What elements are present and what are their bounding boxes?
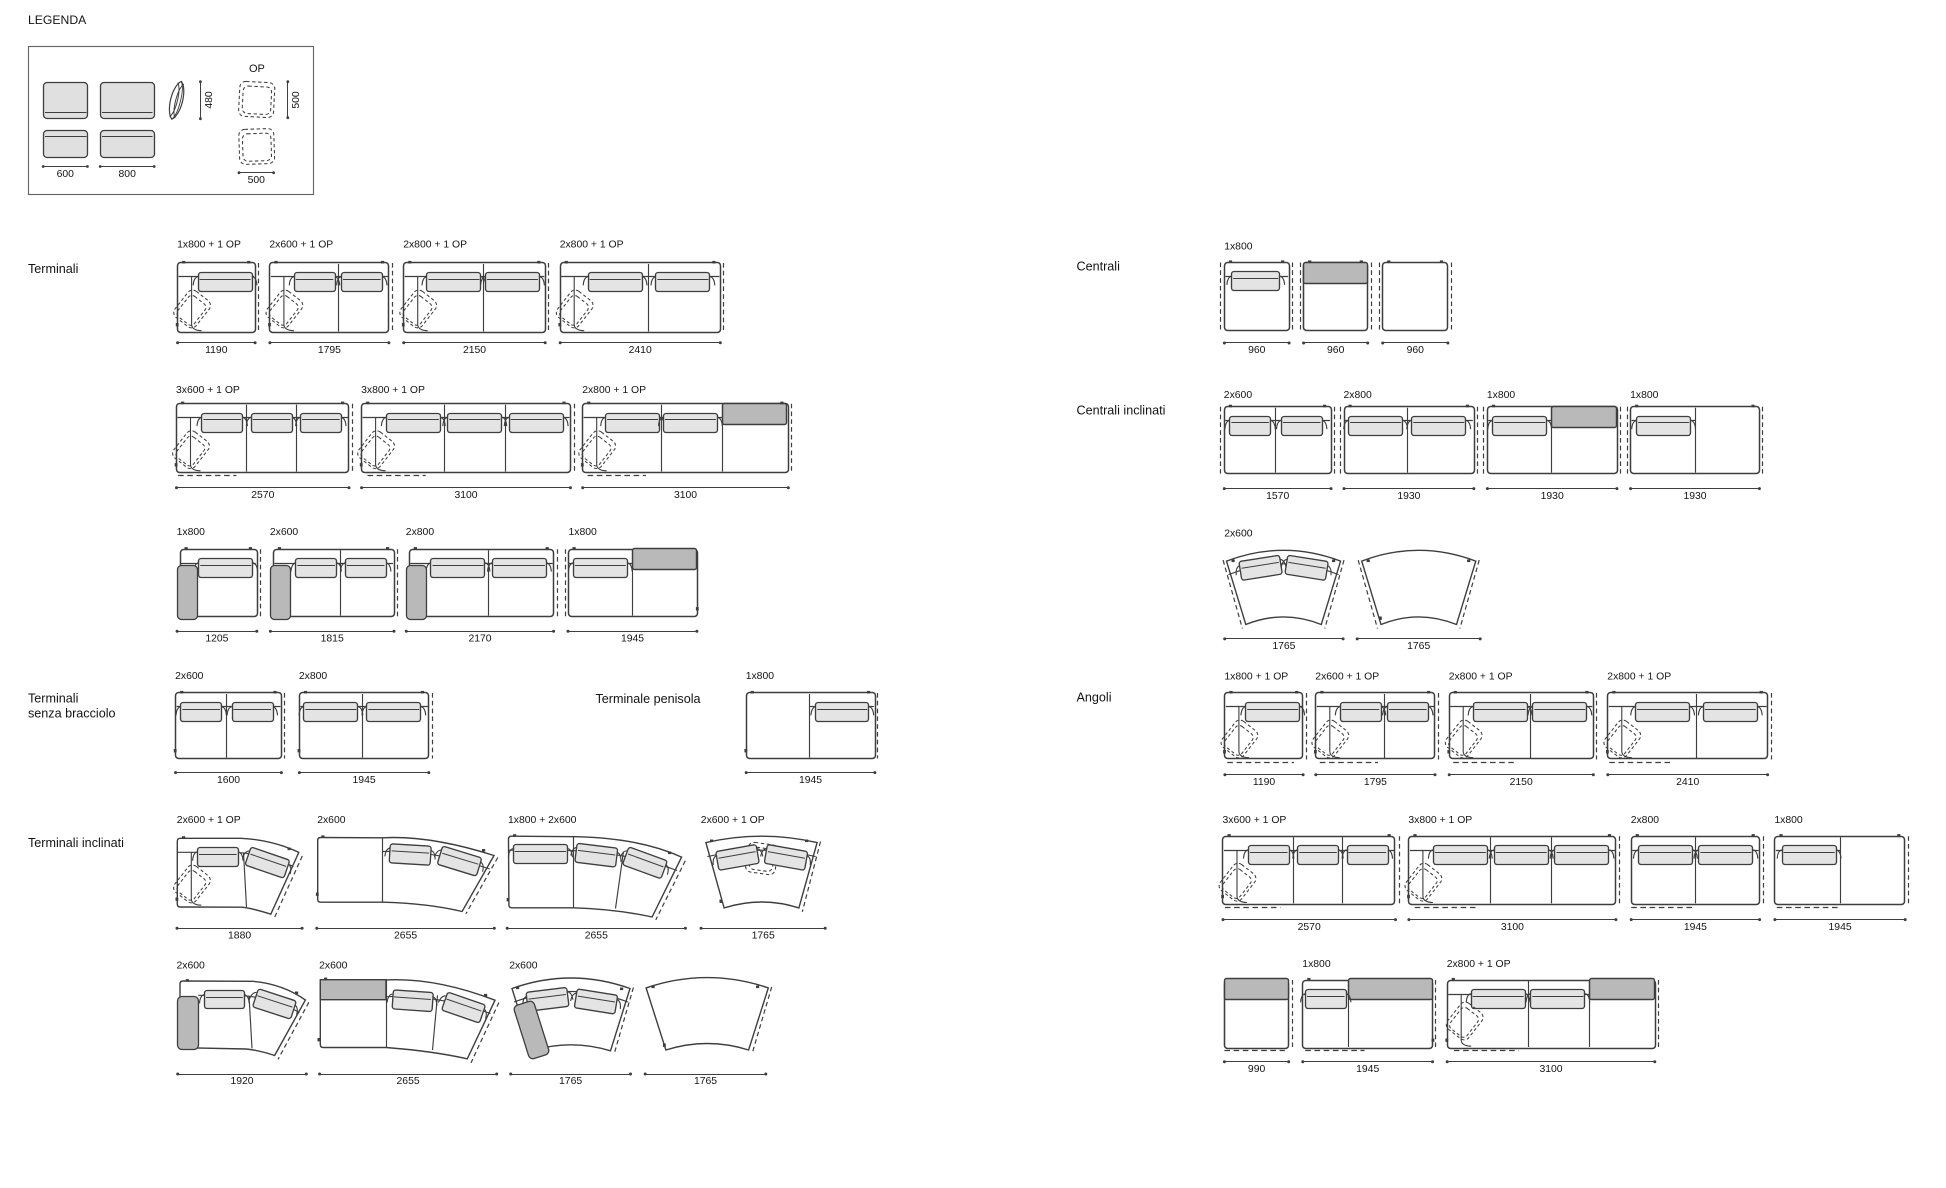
svg-text:2x600 + 1 OP: 2x600 + 1 OP bbox=[701, 815, 765, 826]
svg-text:2x800 + 1 OP: 2x800 + 1 OP bbox=[560, 239, 624, 250]
svg-text:Terminali: Terminali bbox=[28, 692, 78, 706]
svg-text:LEGENDA: LEGENDA bbox=[28, 13, 87, 27]
svg-text:1x800: 1x800 bbox=[1487, 390, 1516, 401]
svg-text:1795: 1795 bbox=[318, 345, 341, 356]
svg-text:1x800 + 1 OP: 1x800 + 1 OP bbox=[177, 239, 241, 250]
svg-text:2655: 2655 bbox=[394, 931, 417, 942]
svg-text:1765: 1765 bbox=[1407, 641, 1430, 652]
svg-text:1945: 1945 bbox=[353, 775, 376, 786]
svg-text:2x800 + 1 OP: 2x800 + 1 OP bbox=[582, 385, 646, 396]
svg-text:senza bracciolo: senza bracciolo bbox=[28, 707, 116, 721]
svg-text:1570: 1570 bbox=[1266, 491, 1289, 502]
svg-text:2x600 + 1 OP: 2x600 + 1 OP bbox=[1315, 671, 1379, 682]
svg-text:2x600: 2x600 bbox=[270, 527, 299, 538]
svg-text:1945: 1945 bbox=[621, 633, 644, 644]
svg-text:1765: 1765 bbox=[694, 1076, 717, 1087]
svg-text:600: 600 bbox=[57, 169, 75, 180]
svg-text:OP: OP bbox=[249, 63, 265, 75]
svg-text:480: 480 bbox=[204, 91, 215, 109]
svg-text:2x800 + 1 OP: 2x800 + 1 OP bbox=[1607, 671, 1671, 682]
svg-text:Terminale penisola: Terminale penisola bbox=[596, 692, 701, 706]
svg-text:2x600: 2x600 bbox=[317, 815, 346, 826]
svg-text:1x800: 1x800 bbox=[1224, 242, 1253, 253]
svg-text:1x800 + 1 OP: 1x800 + 1 OP bbox=[1224, 671, 1288, 682]
svg-text:1x800: 1x800 bbox=[1302, 959, 1331, 970]
svg-text:960: 960 bbox=[1327, 345, 1345, 356]
svg-text:3x800 + 1 OP: 3x800 + 1 OP bbox=[361, 385, 425, 396]
svg-text:1765: 1765 bbox=[752, 931, 775, 942]
svg-text:2x600: 2x600 bbox=[177, 960, 206, 971]
svg-text:2410: 2410 bbox=[1676, 777, 1699, 788]
svg-text:500: 500 bbox=[248, 175, 266, 186]
svg-text:2x800: 2x800 bbox=[1344, 390, 1373, 401]
svg-text:3100: 3100 bbox=[1501, 922, 1524, 933]
svg-text:2x600: 2x600 bbox=[175, 671, 204, 682]
svg-text:1x800: 1x800 bbox=[177, 527, 206, 538]
svg-text:1945: 1945 bbox=[1684, 922, 1707, 933]
svg-text:Centrali inclinati: Centrali inclinati bbox=[1077, 404, 1166, 418]
svg-text:800: 800 bbox=[119, 169, 137, 180]
svg-text:1x800: 1x800 bbox=[1774, 815, 1803, 826]
svg-text:2x600: 2x600 bbox=[1224, 529, 1253, 540]
svg-text:1945: 1945 bbox=[1356, 1064, 1379, 1075]
svg-text:1765: 1765 bbox=[559, 1076, 582, 1087]
svg-text:2570: 2570 bbox=[251, 490, 274, 501]
svg-text:2x800: 2x800 bbox=[299, 671, 328, 682]
svg-text:2x800: 2x800 bbox=[1631, 815, 1660, 826]
svg-text:2x600 + 1 OP: 2x600 + 1 OP bbox=[177, 815, 241, 826]
svg-text:2x800 + 1 OP: 2x800 + 1 OP bbox=[403, 239, 467, 250]
svg-text:1190: 1190 bbox=[1253, 777, 1276, 788]
svg-text:1190: 1190 bbox=[205, 345, 228, 356]
svg-text:990: 990 bbox=[1248, 1064, 1266, 1075]
svg-text:1930: 1930 bbox=[1541, 491, 1564, 502]
svg-text:3100: 3100 bbox=[454, 490, 477, 501]
svg-text:1930: 1930 bbox=[1397, 491, 1420, 502]
svg-text:3x600 + 1 OP: 3x600 + 1 OP bbox=[176, 385, 240, 396]
svg-text:1945: 1945 bbox=[1829, 922, 1852, 933]
svg-text:1600: 1600 bbox=[217, 775, 240, 786]
svg-text:1815: 1815 bbox=[321, 633, 344, 644]
svg-text:2x600: 2x600 bbox=[509, 960, 538, 971]
svg-text:3100: 3100 bbox=[1539, 1064, 1562, 1075]
svg-text:1945: 1945 bbox=[799, 775, 822, 786]
svg-text:2150: 2150 bbox=[463, 345, 486, 356]
svg-text:2150: 2150 bbox=[1510, 777, 1533, 788]
svg-text:1x800: 1x800 bbox=[746, 671, 775, 682]
svg-text:1930: 1930 bbox=[1683, 491, 1706, 502]
svg-text:2x600 + 1 OP: 2x600 + 1 OP bbox=[269, 239, 333, 250]
svg-text:2170: 2170 bbox=[468, 633, 491, 644]
svg-text:1x800: 1x800 bbox=[569, 527, 598, 538]
svg-text:1x800: 1x800 bbox=[1630, 390, 1659, 401]
svg-text:2x600: 2x600 bbox=[1224, 390, 1253, 401]
svg-text:2655: 2655 bbox=[397, 1076, 420, 1087]
svg-text:1920: 1920 bbox=[230, 1076, 253, 1087]
svg-text:Terminali: Terminali bbox=[28, 262, 78, 276]
svg-text:2x600: 2x600 bbox=[319, 960, 348, 971]
svg-text:960: 960 bbox=[1248, 345, 1266, 356]
svg-text:500: 500 bbox=[291, 91, 302, 109]
svg-text:3x600 + 1 OP: 3x600 + 1 OP bbox=[1223, 815, 1287, 826]
svg-text:3x800 + 1 OP: 3x800 + 1 OP bbox=[1408, 815, 1472, 826]
svg-text:1205: 1205 bbox=[205, 633, 228, 644]
svg-text:1795: 1795 bbox=[1364, 777, 1387, 788]
svg-text:Centrali: Centrali bbox=[1077, 260, 1120, 274]
svg-text:Terminali inclinati: Terminali inclinati bbox=[28, 836, 124, 850]
svg-text:1x800 + 2x600: 1x800 + 2x600 bbox=[508, 815, 577, 826]
svg-text:1765: 1765 bbox=[1272, 641, 1295, 652]
svg-text:2410: 2410 bbox=[629, 345, 652, 356]
svg-text:2x800 + 1 OP: 2x800 + 1 OP bbox=[1447, 959, 1511, 970]
svg-text:2x800: 2x800 bbox=[406, 527, 435, 538]
svg-text:Angoli: Angoli bbox=[1077, 691, 1112, 705]
svg-text:1880: 1880 bbox=[228, 931, 251, 942]
svg-text:2655: 2655 bbox=[585, 931, 608, 942]
svg-text:960: 960 bbox=[1407, 345, 1425, 356]
svg-text:3100: 3100 bbox=[674, 490, 697, 501]
svg-text:2x800 + 1 OP: 2x800 + 1 OP bbox=[1449, 671, 1513, 682]
svg-text:2570: 2570 bbox=[1298, 922, 1321, 933]
